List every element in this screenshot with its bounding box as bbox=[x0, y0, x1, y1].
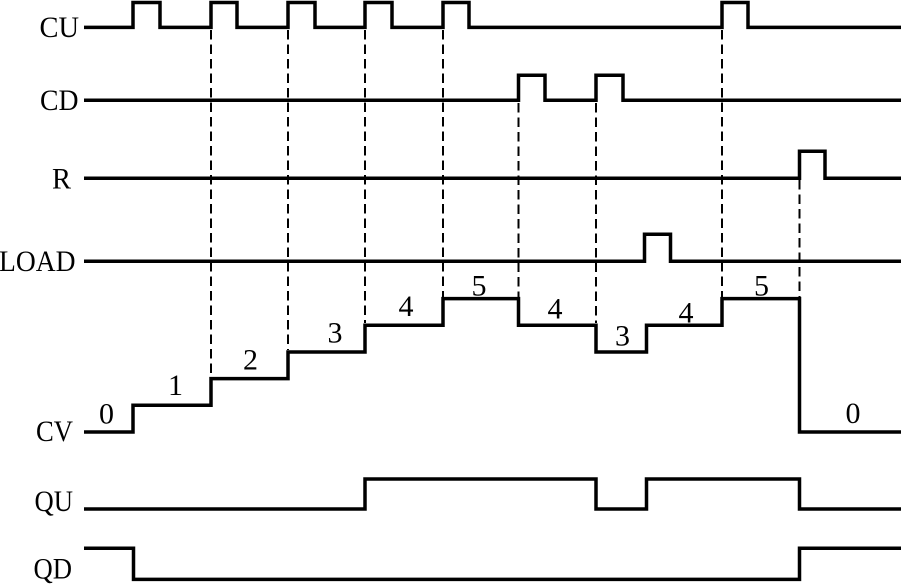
svg-text:5: 5 bbox=[472, 270, 487, 303]
svg-text:0: 0 bbox=[846, 397, 861, 430]
svg-text:3: 3 bbox=[615, 320, 630, 353]
svg-text:QU: QU bbox=[35, 485, 74, 518]
svg-text:0: 0 bbox=[99, 398, 114, 431]
svg-text:2: 2 bbox=[243, 344, 258, 377]
svg-text:1: 1 bbox=[168, 369, 183, 402]
svg-text:R: R bbox=[52, 163, 71, 196]
svg-text:4: 4 bbox=[399, 290, 414, 323]
svg-text:QD: QD bbox=[34, 552, 73, 584]
svg-text:4: 4 bbox=[548, 293, 563, 326]
svg-text:3: 3 bbox=[328, 317, 343, 350]
svg-text:CD: CD bbox=[40, 84, 79, 117]
svg-text:5: 5 bbox=[754, 270, 769, 303]
svg-text:CU: CU bbox=[40, 11, 80, 44]
svg-text:CV: CV bbox=[36, 415, 73, 448]
svg-text:LOAD: LOAD bbox=[0, 245, 76, 278]
svg-text:4: 4 bbox=[679, 297, 694, 330]
